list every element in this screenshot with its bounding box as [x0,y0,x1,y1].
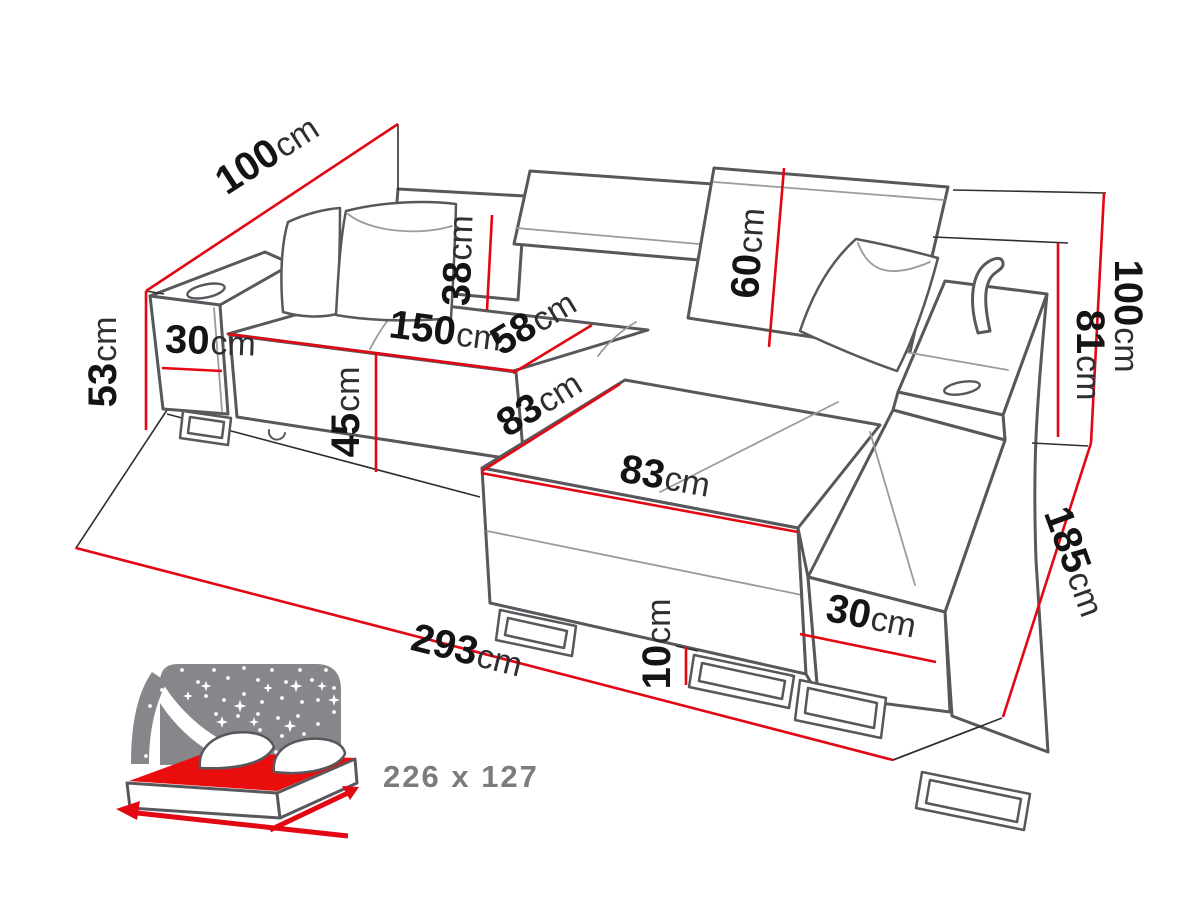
star-dot [300,700,304,704]
star-dot [242,666,246,670]
star-dot [260,700,264,704]
dimension-label-dim30_left: 30cm [164,317,256,364]
star-dot [324,668,328,672]
star-dot [148,704,152,708]
sleep-function-icon: 226 x 127 [116,664,539,836]
star-dot [280,734,284,738]
dimension-label-dim81: 81cm [1068,310,1112,401]
star-dot [270,668,274,672]
extension-line [1032,443,1088,446]
dimension-label-dim38: 38cm [434,214,481,306]
star-dot [256,712,260,716]
star-dot [204,694,208,698]
sled-leg [180,411,231,445]
dimension-label-dim100_right: 100cm [1106,259,1150,372]
star-dot [280,696,284,700]
star-dot [256,678,260,682]
star-dot [310,678,314,682]
headrest-cushion [514,171,727,262]
headrest-slab [514,171,727,262]
star-dot [212,668,216,672]
star-dot [236,714,240,718]
dimension-label-dim185: 185cm [1035,501,1115,622]
star-dot [332,686,336,690]
star-dot [242,692,246,696]
star-dot [298,668,302,672]
dimension-label-dim45: 45cm [324,367,368,458]
star-dot [258,728,262,732]
star-dot [316,698,320,702]
throw-pillows [281,202,456,320]
star-dot [156,736,160,740]
extension-line [953,190,1106,193]
bed-size-label: 226 x 127 [383,759,539,794]
dimension-label-dim53: 53cm [81,317,125,408]
diagram-svg: 100cm53cm30cm150cm45cm38cm58cm60cm83cm83… [0,0,1200,899]
sled-leg [916,772,1030,830]
star-dot [316,722,320,726]
sofa-dimension-diagram: 100cm53cm30cm150cm45cm38cm58cm60cm83cm83… [0,0,1200,899]
bed-pictogram [116,732,359,836]
star-dot [302,732,306,736]
dimension-label-dim100_left: 100cm [208,105,327,203]
star-dot [296,714,300,718]
dimension-label-dim10: 10cm [635,599,679,690]
panel-notch [269,430,285,440]
star-dot [180,668,184,672]
star-dot [196,680,200,684]
star-dot [284,680,288,684]
star-dot [332,710,336,714]
star-dot [214,712,218,716]
left-armrest-top-face [150,252,292,305]
extension-line [893,718,1002,760]
star-dot [144,754,148,758]
star-dot [226,676,230,680]
star-dot [160,688,164,692]
star-dot [222,698,226,702]
pillow-small [281,208,340,316]
extension-line [933,237,1068,243]
star-dot [276,716,280,720]
